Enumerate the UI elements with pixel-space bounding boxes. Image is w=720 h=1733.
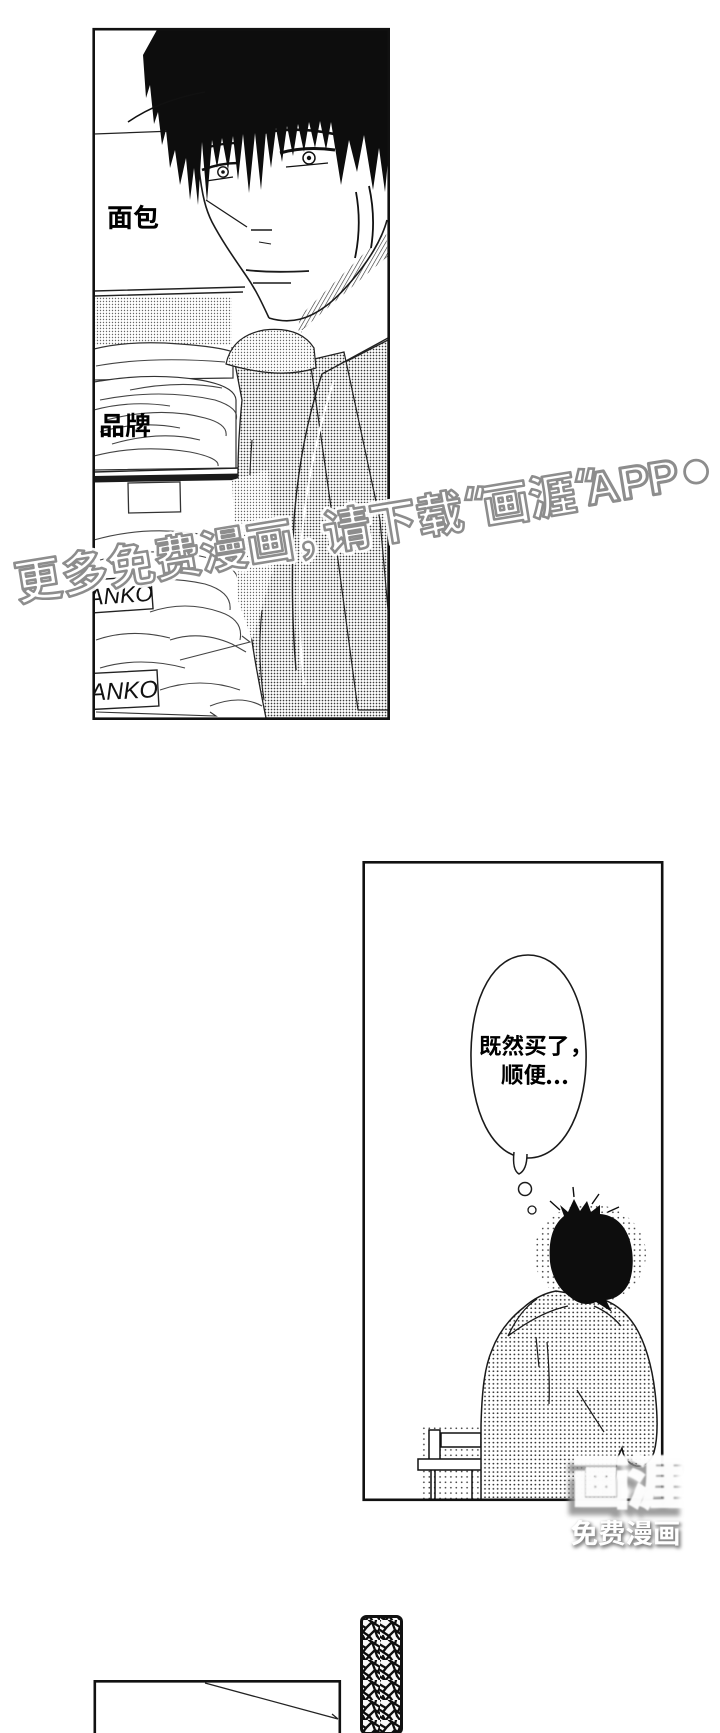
svg-text:ANKO: ANKO [87,676,158,707]
